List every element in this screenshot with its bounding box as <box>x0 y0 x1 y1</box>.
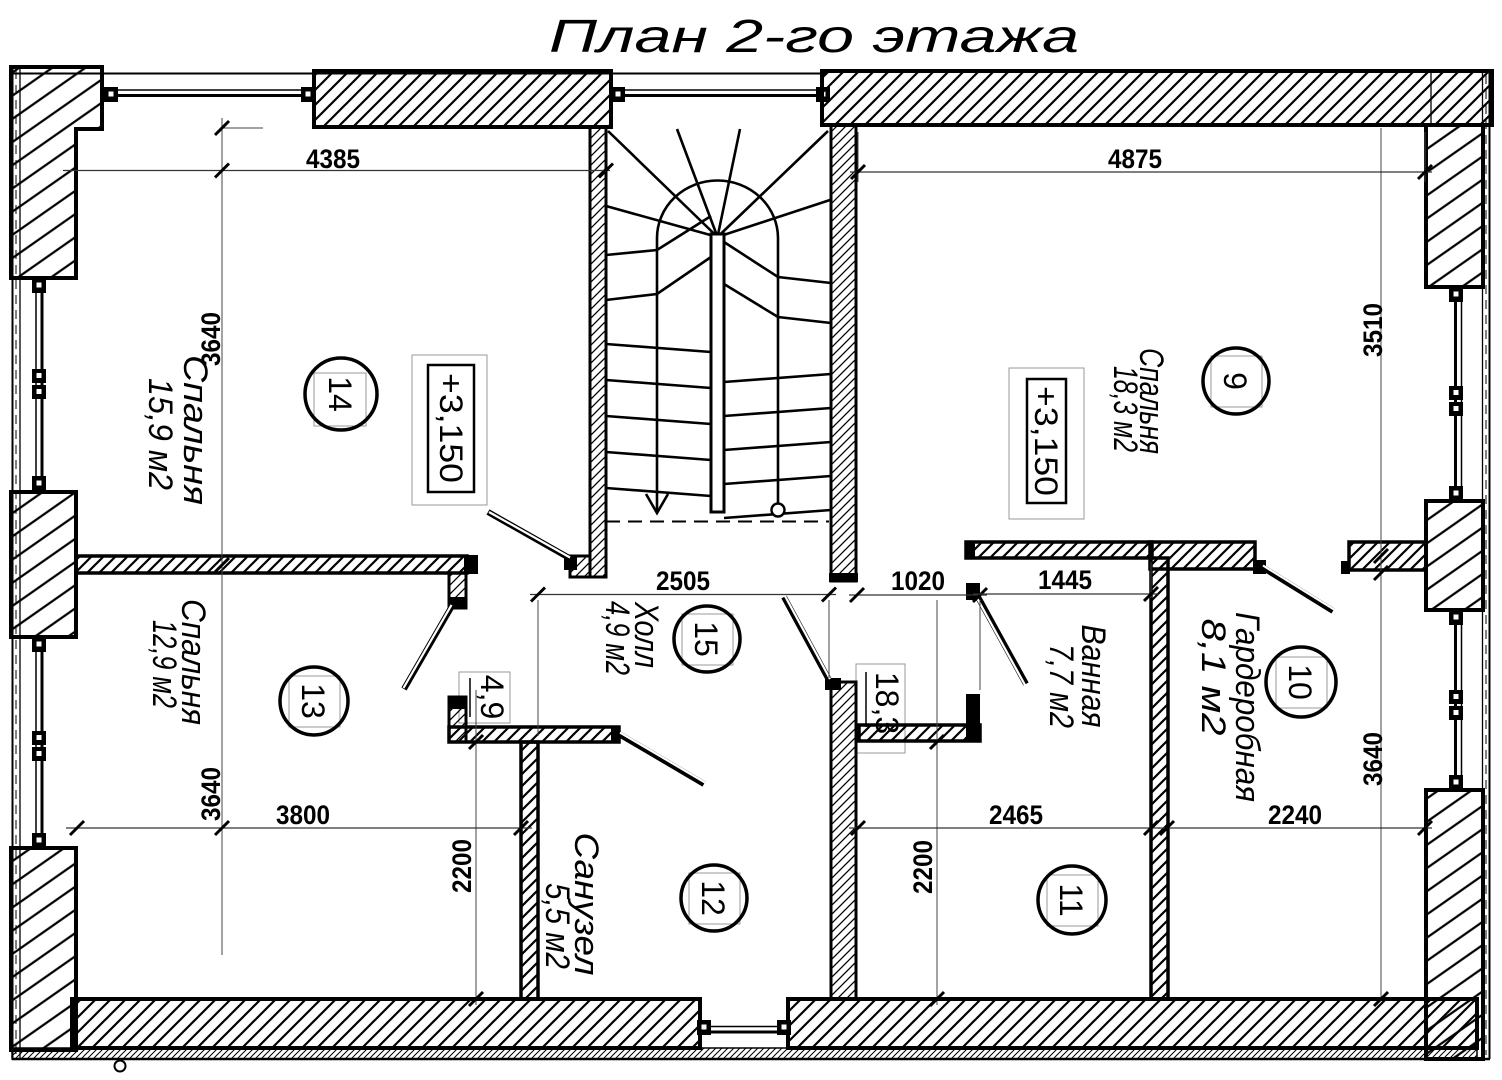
svg-text:Спальня: Спальня <box>176 355 214 505</box>
svg-text:13: 13 <box>295 683 331 719</box>
svg-text:+3,150: +3,150 <box>433 373 469 483</box>
svg-text:Гардеробная: Гардеробная <box>1228 612 1266 802</box>
svg-text:1020: 1020 <box>891 566 945 596</box>
svg-text:2505: 2505 <box>656 566 710 596</box>
svg-text:9: 9 <box>1217 372 1253 390</box>
svg-text:5,5 м2: 5,5 м2 <box>538 883 576 969</box>
svg-text:+3,150: +3,150 <box>1028 386 1064 496</box>
svg-text:14: 14 <box>322 376 358 412</box>
svg-text:4875: 4875 <box>1108 144 1162 174</box>
svg-text:3640: 3640 <box>196 767 226 821</box>
svg-text:11: 11 <box>1053 883 1089 916</box>
svg-text:4,9: 4,9 <box>474 675 510 719</box>
svg-text:4,9 м2: 4,9 м2 <box>598 601 636 675</box>
svg-text:2240: 2240 <box>1268 800 1322 830</box>
svg-text:3640: 3640 <box>1358 732 1388 786</box>
svg-text:15,9 м2: 15,9 м2 <box>141 378 179 490</box>
svg-text:10: 10 <box>1282 664 1318 700</box>
svg-text:4385: 4385 <box>306 144 360 174</box>
svg-text:12,9 м2: 12,9 м2 <box>145 620 183 708</box>
svg-text:3800: 3800 <box>276 800 330 830</box>
svg-text:8,1 м2: 8,1 м2 <box>1194 619 1232 736</box>
svg-text:3510: 3510 <box>1358 303 1388 357</box>
svg-text:18,3 м2: 18,3 м2 <box>1106 366 1144 452</box>
svg-text:План 2-го этажа: План 2-го этажа <box>549 10 1079 62</box>
svg-text:1445: 1445 <box>1038 565 1092 595</box>
svg-text:7,7 м2: 7,7 м2 <box>1042 644 1080 728</box>
svg-text:2465: 2465 <box>989 800 1043 830</box>
svg-text:12: 12 <box>695 880 731 916</box>
svg-text:2200: 2200 <box>447 839 477 893</box>
svg-text:2200: 2200 <box>908 840 938 894</box>
svg-text:15: 15 <box>688 621 724 657</box>
